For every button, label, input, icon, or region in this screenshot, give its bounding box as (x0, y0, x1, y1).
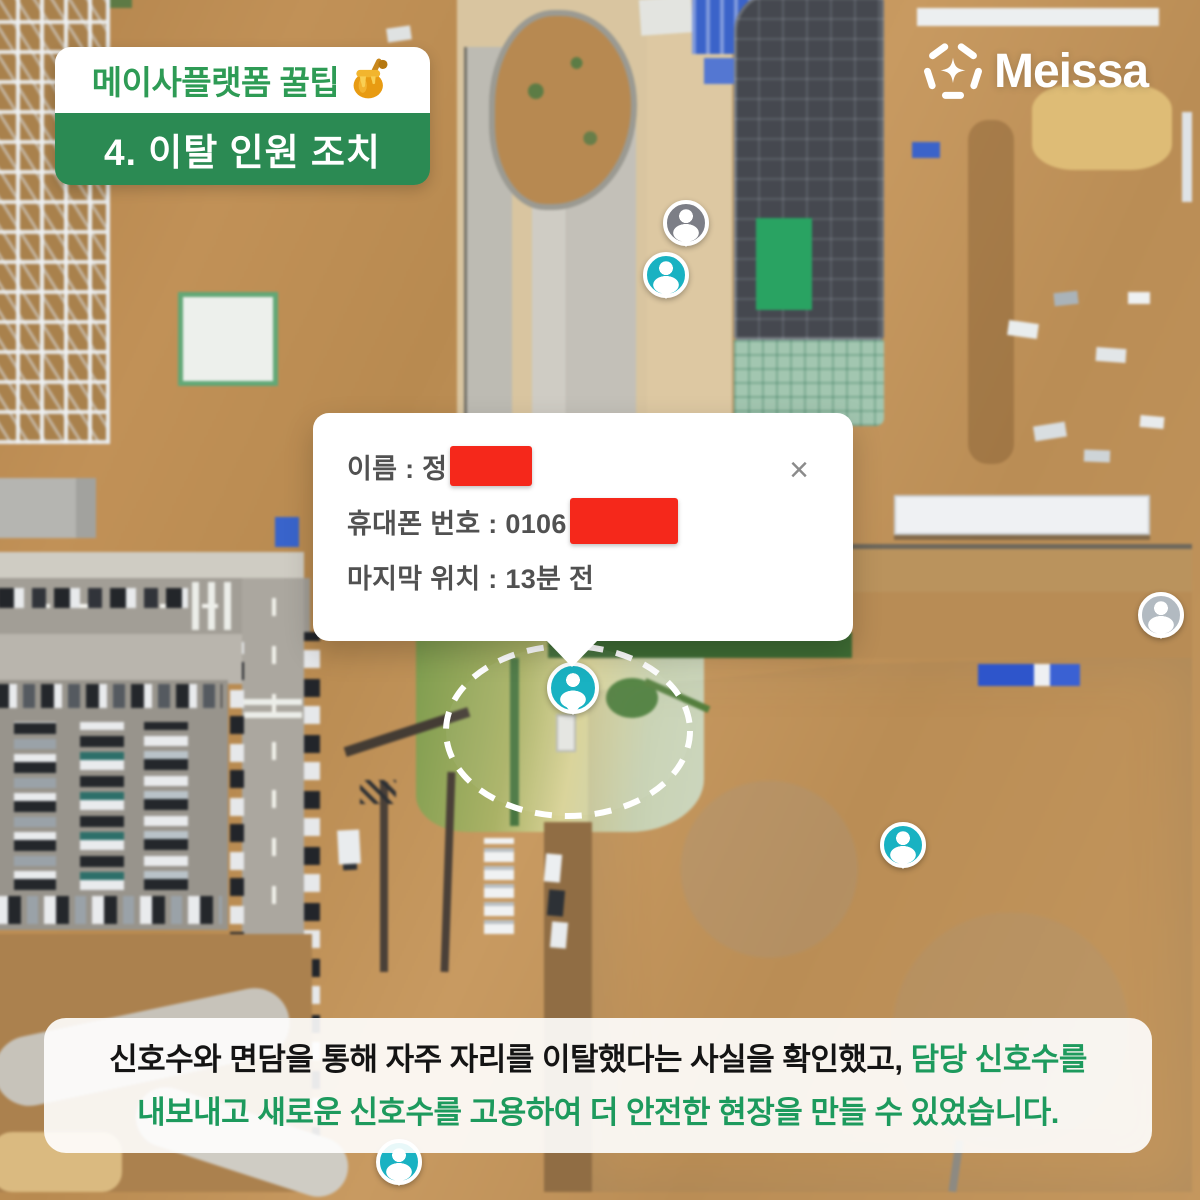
meissa-logo: Meissa (924, 42, 1148, 100)
caption-banner: 신호수와 면담을 통해 자주 자리를 이탈했다는 사실을 확인했고, 담당 신호… (44, 1018, 1152, 1153)
worker-info-popup: × 이름 : 정 휴대폰 번호 : 0106 마지막 위치 : 13분 전 (313, 413, 853, 641)
promo-card: × 이름 : 정 휴대폰 번호 : 0106 마지막 위치 : 13분 전 메이… (0, 0, 1200, 1200)
tip-badge: 메이사플랫폼 꿀팁 4. 이탈 인원 조치 (55, 47, 430, 185)
redaction-box-phone (570, 498, 678, 544)
redaction-box-name (450, 446, 532, 486)
tip-badge-title: 메이사플랫폼 꿀팁 (92, 56, 340, 104)
person-pin[interactable] (880, 822, 926, 868)
tip-badge-header: 메이사플랫폼 꿀팁 (55, 47, 430, 113)
tip-badge-banner: 4. 이탈 인원 조치 (55, 113, 430, 185)
popup-last-location-label: 마지막 위치 : 13분 전 (347, 557, 594, 596)
popup-phone-label: 휴대폰 번호 : 0106 (347, 502, 567, 541)
popup-name-label: 이름 : 정 (347, 447, 447, 486)
popup-last-location-row: 마지막 위치 : 13분 전 (347, 557, 813, 595)
caption-line1-black: 신호수와 면담을 통해 자주 자리를 이탈했다는 사실을 확인했고, (109, 1042, 911, 1077)
caption-line-2: 내보내고 새로운 신호수를 고용하여 더 안전한 현장을 만들 수 있었습니다. (137, 1097, 1059, 1128)
person-pin[interactable] (663, 200, 709, 246)
meissa-logo-text: Meissa (994, 44, 1148, 99)
caption-line2-green: 내보내고 새로운 신호수를 고용하여 더 안전한 현장을 만들 수 있었습니다. (137, 1095, 1059, 1130)
person-pin[interactable] (643, 252, 689, 298)
person-pin[interactable] (1138, 592, 1184, 638)
meissa-logo-icon (924, 42, 982, 100)
caption-line1-green: 담당 신호수를 (911, 1042, 1087, 1077)
tip-badge-subtitle: 4. 이탈 인원 조치 (104, 122, 381, 176)
close-icon[interactable]: × (789, 453, 809, 487)
caption-line-1: 신호수와 면담을 통해 자주 자리를 이탈했다는 사실을 확인했고, 담당 신호… (109, 1044, 1087, 1075)
popup-name-row: 이름 : 정 (347, 447, 813, 485)
person-pin[interactable] (547, 662, 599, 714)
honey-pot-icon (349, 58, 393, 102)
popup-phone-row: 휴대폰 번호 : 0106 (347, 502, 813, 540)
